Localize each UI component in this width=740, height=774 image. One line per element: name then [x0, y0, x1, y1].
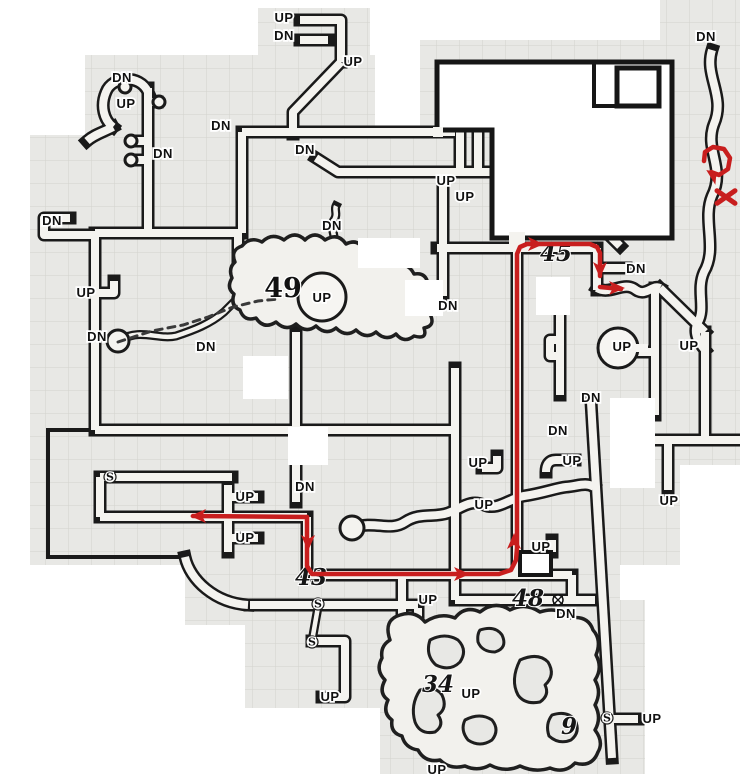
- stair-label-dn: DN: [556, 606, 576, 621]
- room-number-48: 48: [512, 585, 544, 612]
- stair-label-up: UP: [235, 530, 254, 545]
- secret-door-marker: S: [106, 471, 114, 484]
- stair-label-dn: DN: [322, 218, 342, 233]
- stair-label-up: UP: [76, 285, 95, 300]
- stair-label-up: UP: [274, 10, 293, 25]
- dungeon-map: UPDNUPDNUPDNDNDNUPUPDNDNDNDNUPUPDNDNDNUP…: [0, 0, 740, 774]
- stair-label-up: UP: [468, 455, 487, 470]
- stair-label-up: UP: [455, 189, 474, 204]
- secret-door-marker: S: [314, 598, 322, 611]
- stair-label-dn: DN: [196, 339, 216, 354]
- stair-label-up: UP: [642, 711, 661, 726]
- stair-label-dn: DN: [112, 70, 132, 85]
- stair-label-dn: DN: [696, 29, 716, 44]
- stair-label-dn: DN: [548, 423, 568, 438]
- room-south-doorway: [509, 232, 525, 244]
- stair-label-up: UP: [320, 689, 339, 704]
- room-number-43: 43: [295, 564, 327, 591]
- stair-label-dn: DN: [295, 479, 315, 494]
- route-segment: [193, 516, 307, 517]
- room-number-34: 34: [422, 671, 454, 698]
- inner-square-room: [617, 68, 659, 106]
- round-room-doorway: [634, 344, 648, 352]
- stair-label-up: UP: [612, 339, 631, 354]
- stair-label-up: UP: [343, 54, 362, 69]
- stair-label-up: UP: [562, 453, 581, 468]
- stair-label-up: UP: [531, 539, 550, 554]
- stair-label-dn: DN: [438, 298, 458, 313]
- stair-label-up: UP: [418, 592, 437, 607]
- secret-door-marker: S: [308, 636, 316, 649]
- stair-label-dn: DN: [211, 118, 231, 133]
- room-number-9: 9: [561, 713, 577, 740]
- stair-label-up: UP: [679, 338, 698, 353]
- stair-label-dn: DN: [581, 390, 601, 405]
- stair-label-dn: DN: [295, 142, 315, 157]
- small-square-room: [520, 552, 551, 575]
- stair-label-up: UP: [312, 290, 331, 305]
- stair-label-up: UP: [436, 173, 455, 188]
- stair-label-up: UP: [116, 96, 135, 111]
- secret-door-marker: S: [603, 712, 611, 725]
- dungeon-map-page: UPDNUPDNUPDNDNDNUPUPDNDNDNDNUPUPDNDNDNUP…: [0, 0, 740, 774]
- stair-label-dn: DN: [42, 213, 62, 228]
- stair-label-up: UP: [474, 497, 493, 512]
- room-number-49: 49: [264, 273, 302, 304]
- door-symbol-layer: [553, 595, 563, 605]
- stair-label-up: UP: [235, 489, 254, 504]
- stair-label-up: UP: [659, 493, 678, 508]
- room-west-doorway: [433, 127, 443, 137]
- stair-label-up: UP: [427, 762, 446, 774]
- stair-label-dn: DN: [626, 261, 646, 276]
- stair-label-dn: DN: [153, 146, 173, 161]
- stair-label-up: UP: [461, 686, 480, 701]
- stair-label-dn: DN: [87, 329, 107, 344]
- stair-label-dn: DN: [274, 28, 294, 43]
